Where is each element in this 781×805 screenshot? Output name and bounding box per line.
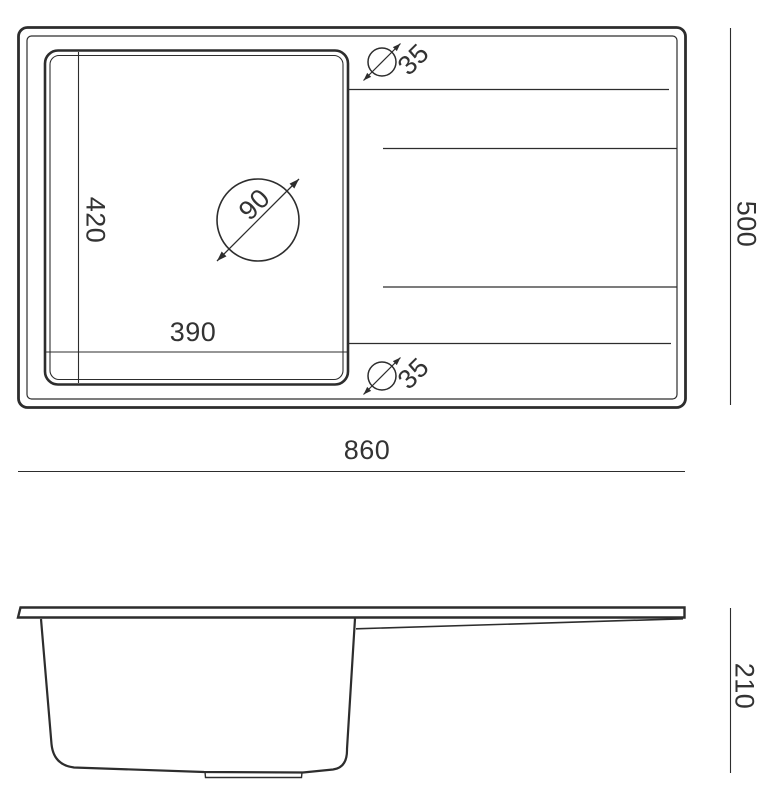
label-35-top: 35 [392,38,435,81]
side-view-labels: 210 [730,663,760,710]
label-420: 420 [81,197,111,244]
drawing-svg: 420 390 90 35 35 500 860 210 [0,0,781,800]
sink-side-view [18,608,731,778]
label-860: 860 [344,435,391,465]
label-500: 500 [732,201,762,248]
drainboard-slope-line [356,619,683,629]
bowl-profile [41,619,355,773]
label-35-bottom: 35 [392,352,435,395]
outer-rim [19,28,686,408]
label-210: 210 [730,663,760,710]
top-view-labels: 420 390 90 35 35 500 860 [81,38,762,465]
sink-top-view [18,28,731,472]
label-390: 390 [170,317,217,347]
rim-inner-line [27,36,677,399]
deck-profile [18,608,685,618]
sink-technical-drawing: 420 390 90 35 35 500 860 210 [0,0,781,800]
label-90: 90 [233,183,276,226]
